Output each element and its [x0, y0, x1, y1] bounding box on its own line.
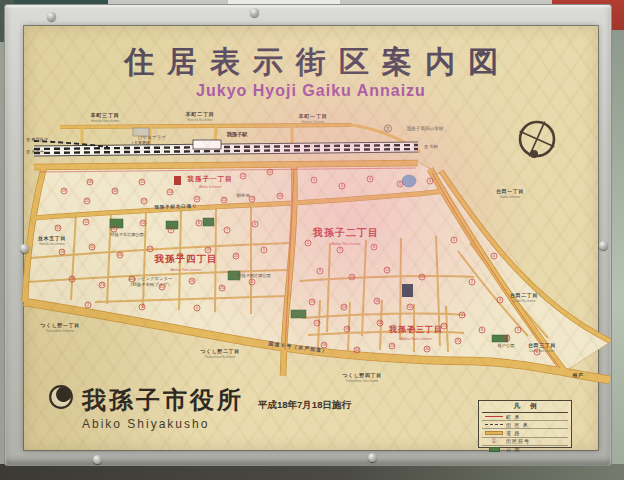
frame-bolt: [47, 12, 56, 21]
legend-symbol-boundary: [485, 416, 503, 417]
legend-rows: 町 界街 区 界道 路①街区符号公 園: [482, 413, 568, 453]
frame-bolt: [20, 244, 29, 253]
legend-box: 凡例 町 界街 区 界道 路①街区符号公 園: [478, 400, 572, 448]
legend-row: 道 路: [482, 429, 568, 437]
frame-bolt: [368, 453, 377, 462]
legend-label: 街 区 界: [506, 422, 529, 428]
frame-bolt: [599, 241, 608, 250]
enforcement-date: 平成18年7月18日施行: [258, 399, 351, 412]
legend-label: 町 界: [506, 414, 520, 420]
legend-symbol-number: ①: [491, 438, 496, 444]
legend-symbol-road: [485, 431, 503, 435]
legend-label: 道 路: [506, 430, 520, 436]
background-ground-shadow: [0, 464, 624, 480]
city-office-name: 我孫子市役所: [82, 384, 244, 416]
publisher-text: 我孫子市役所 平成18年7月18日施行 Abiko Shiyakusho: [82, 384, 351, 431]
frame-bolt: [250, 8, 259, 17]
legend-symbol-block: [485, 424, 503, 425]
legend-label: 街区符号: [506, 438, 530, 444]
background-wall: [610, 30, 624, 480]
legend-title: 凡例: [482, 402, 568, 413]
city-office-romaji: Abiko Shiyakusho: [82, 417, 351, 431]
legend-row: 町 界: [482, 413, 568, 421]
sign-subtitle: Jukyo Hyoji Gaiku Annaizu: [24, 82, 598, 100]
legend-row: ①街区符号: [482, 438, 568, 446]
sign-title: 住居表示街区案内図: [24, 42, 598, 83]
photo-of-sign: 住居表示街区案内図 Jukyo Hyoji Gaiku Annaizu 我孫子市…: [0, 0, 624, 480]
frame-bolt: [93, 455, 102, 464]
publisher-block: 我孫子市役所 平成18年7月18日施行 Abiko Shiyakusho: [48, 384, 351, 431]
abiko-city-logo: [48, 384, 74, 410]
sign-panel: 住居表示街区案内図 Jukyo Hyoji Gaiku Annaizu 我孫子市…: [24, 26, 598, 450]
legend-row: 公 園: [482, 446, 568, 453]
legend-symbol-park: [489, 447, 500, 452]
legend-row: 街 区 界: [482, 421, 568, 429]
legend-label: 公 園: [506, 446, 520, 452]
